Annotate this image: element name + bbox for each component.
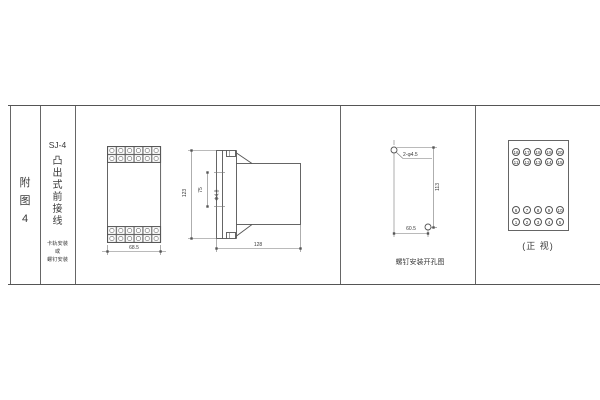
- terminal-number: 5: [556, 218, 564, 226]
- index-column-char: 图: [10, 192, 40, 210]
- side-height-dimension: 123: [182, 189, 188, 197]
- terminal-number: 17: [523, 148, 531, 156]
- terminal-number: 15: [556, 158, 564, 166]
- drill-hole-label: 2-φ4.5: [403, 152, 418, 158]
- drill-vertical-dimension: 113: [435, 183, 441, 191]
- terminal-number: 18: [534, 148, 542, 156]
- relay-model-label: SJ-4: [40, 140, 75, 150]
- side-hole-span-dimension: 75: [198, 187, 204, 193]
- terminal-number: 8: [534, 206, 542, 214]
- mounting-note-line: 或: [41, 249, 74, 256]
- terminal-number: 14: [545, 158, 553, 166]
- side-depth-dimension: 128: [245, 242, 271, 248]
- terminal-number: 12: [523, 158, 531, 166]
- terminal-number: 2: [523, 218, 531, 226]
- terminal-number: 1: [512, 218, 520, 226]
- terminal-number: 11: [512, 158, 520, 166]
- terminal-number: 4: [545, 218, 553, 226]
- side-hole-diameter-label: Φ4.8: [214, 190, 220, 201]
- title-char: 出: [40, 168, 75, 180]
- terminal-number: 7: [523, 206, 531, 214]
- terminal-number: 16: [512, 148, 520, 156]
- front-width-dimension: 68.5: [107, 245, 161, 251]
- terminal-number: 19: [545, 148, 553, 156]
- technical-drawing-sheet: 附 图 4 SJ-4 凸 出 式 前 接 线 卡轨安装 或 螺钉安装 68.5 …: [0, 0, 600, 400]
- title-char: 前: [40, 192, 75, 204]
- index-column-char: 4: [10, 210, 40, 228]
- terminal-number: 20: [556, 148, 564, 156]
- terminal-number: 10: [556, 206, 564, 214]
- title-char: 凸: [40, 156, 75, 168]
- title-char: 式: [40, 180, 75, 192]
- title-char: 线: [40, 216, 75, 228]
- index-column-char: 附: [10, 174, 40, 192]
- drill-horizontal-dimension: 60.5: [398, 226, 424, 232]
- title-char: 接: [40, 204, 75, 216]
- terminal-view-caption: (正 视): [508, 239, 568, 252]
- mounting-note-line: 卡轨安装: [41, 241, 74, 248]
- side-view-drawing: [188, 149, 302, 252]
- front-view-drawing: [102, 147, 166, 256]
- mounting-note-line: 螺钉安装: [41, 257, 74, 264]
- terminal-number: 9: [545, 206, 553, 214]
- terminal-number: 13: [534, 158, 542, 166]
- drill-view-caption: 螺钉安装开孔图: [382, 257, 458, 267]
- terminal-layout: 16 17 18 19 20 11 12 13 14 15 6 7 8 9 10…: [508, 140, 568, 231]
- terminal-number: 3: [534, 218, 542, 226]
- terminal-number: 6: [512, 206, 520, 214]
